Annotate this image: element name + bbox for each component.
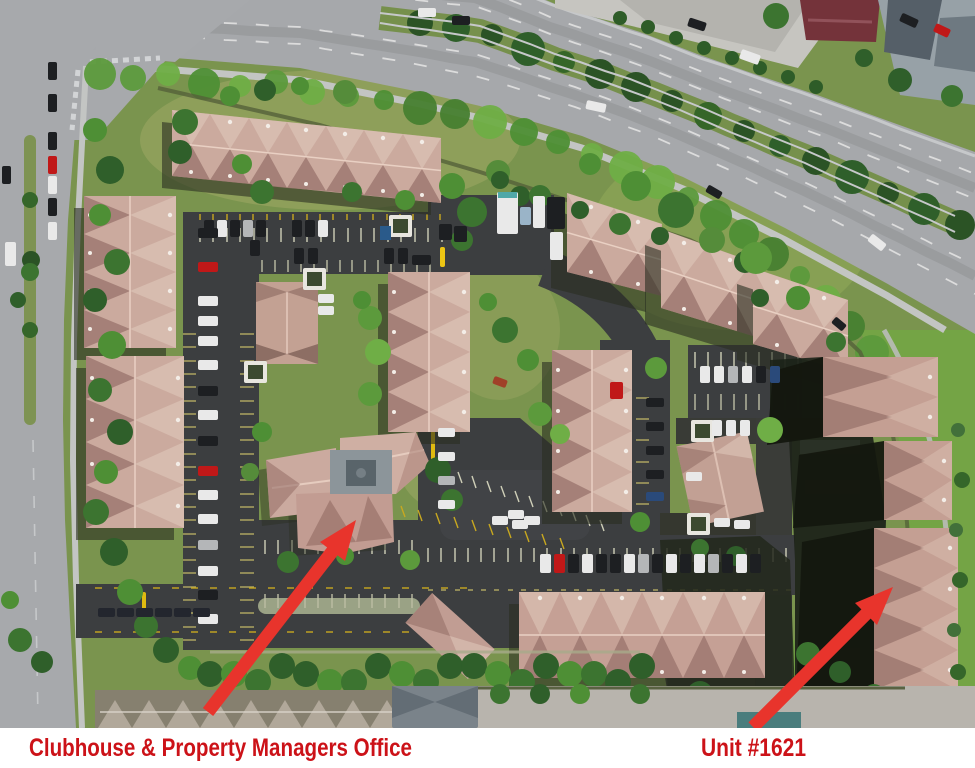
svg-text:Clubhouse & Property Managers: Clubhouse & Property Managers Office — [29, 734, 412, 762]
svg-text:Unit #1621: Unit #1621 — [701, 734, 806, 762]
